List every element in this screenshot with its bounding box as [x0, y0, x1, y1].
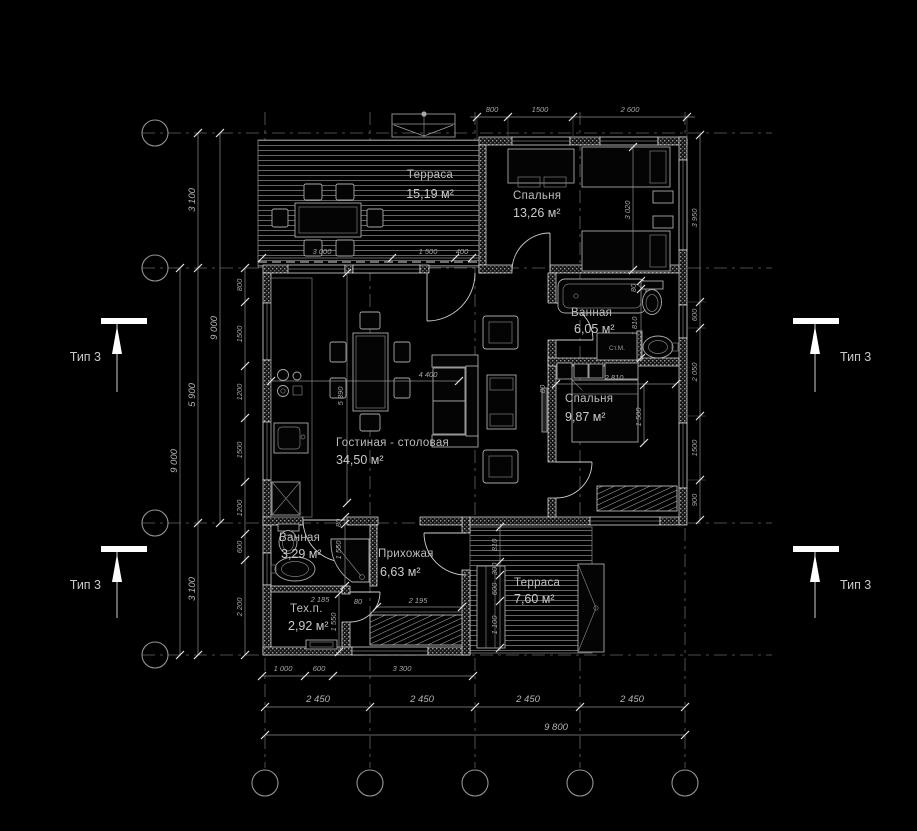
dim-bottom-axes-0: 2 450	[305, 694, 330, 705]
chair	[336, 240, 354, 256]
dim-left-9000-a: 9 000	[209, 315, 220, 339]
roof-window-symbol	[392, 111, 455, 137]
axis-bubble	[462, 770, 488, 796]
chair	[336, 184, 354, 200]
dim-terrace-top-0: 3 000	[313, 247, 333, 256]
dim-annex-f: 2 195	[408, 596, 429, 605]
dim-right-2: 2 050	[690, 362, 699, 383]
room-label-bathroom2: Ванная	[279, 532, 320, 544]
dim-bottom-axes-1: 2 450	[409, 694, 434, 705]
tv	[542, 388, 547, 432]
dim-left-inner-0: 800	[235, 278, 244, 291]
dim-bottom-total: 9 800	[544, 722, 568, 733]
dim-left-inner-5: 600	[235, 540, 244, 553]
room-area-hallway: 6,63 м²	[380, 565, 421, 579]
room-label-tech: Тех.п.	[290, 603, 323, 615]
pillow	[574, 364, 588, 378]
nightstand	[653, 191, 673, 203]
bed	[582, 147, 670, 187]
dim-bottom-house-0: 1 000	[274, 664, 294, 673]
dim-right-0: 3 950	[690, 208, 699, 228]
room-label-terrace-bottom: Терраса	[514, 577, 561, 589]
armchair	[483, 450, 518, 483]
dim-left-inner-3: 1500	[235, 441, 244, 459]
washer-label: Ст.М.	[609, 345, 625, 352]
room-area-terrace-top: 15,19 м²	[406, 187, 454, 201]
room-label-living: Гостиная - столовая	[336, 437, 449, 449]
axis-bubble	[357, 770, 383, 796]
dim-living-h: 5 390	[336, 386, 345, 406]
dim-left-mid-0: 3 100	[187, 187, 198, 211]
room-label-hallway: Прихожая	[378, 548, 434, 560]
dim-bedroom2-bed: 1 500	[634, 407, 643, 427]
axis-bubble	[567, 770, 593, 796]
dim-left-9000-b: 9 000	[169, 448, 180, 472]
chair	[272, 209, 288, 227]
section-marker-label: Тип 3	[840, 350, 871, 364]
dim-right-1: 600	[690, 308, 699, 321]
planter	[578, 564, 604, 652]
bench	[477, 566, 505, 648]
radiator	[306, 640, 337, 649]
section-marker-left-bottom: Тип 3	[70, 546, 147, 618]
dim-terrace-top-1: 1 500	[419, 247, 439, 256]
section-marker-right-bottom: Тип 3	[793, 546, 871, 618]
dim-top-2: 2 600	[620, 105, 641, 114]
chair	[304, 184, 322, 200]
dim-top-0: 800	[486, 105, 499, 114]
dim-terrace-bottom-3: 1 100	[490, 615, 499, 635]
dining-table	[353, 333, 388, 411]
dim-bathroom1-gap: 80	[629, 283, 638, 292]
axis-bubble	[252, 770, 278, 796]
dim-bottom-axes-2: 2 450	[515, 694, 540, 705]
room-label-bathroom1: Ванная	[571, 307, 612, 319]
dim-annex-b: 1 550	[334, 540, 343, 560]
dim-left-mid-1: 5 900	[187, 382, 198, 406]
kitchen-counter	[271, 278, 312, 517]
floor-plan-drawing: 800 1500 2 600 9 000 3 100 5 900 3 100 9…	[0, 0, 917, 831]
bedroom1-door-arc	[512, 233, 550, 271]
section-marker-right-top: Тип 3	[793, 318, 871, 392]
sofa	[432, 355, 478, 447]
dim-bottom-house-2: 3 300	[393, 664, 413, 673]
chair	[360, 414, 380, 431]
dim-bedroom2-w: 2 810	[604, 373, 625, 382]
room-area-bedroom2: 9,87 м²	[565, 410, 606, 424]
pillow	[589, 364, 603, 378]
bed	[582, 231, 670, 271]
room-area-bathroom1: 6,05 м²	[574, 322, 615, 336]
dim-left-inner-2: 1200	[235, 383, 244, 401]
terrace-table	[295, 203, 361, 237]
dim-bottom-house-1: 600	[313, 664, 326, 673]
dim-right-4: 900	[690, 493, 699, 506]
room-area-bedroom1: 13,26 м²	[513, 206, 561, 220]
armchair	[483, 316, 518, 349]
section-marker-label: Тип 3	[70, 350, 101, 364]
sink	[643, 336, 673, 358]
wardrobe-hatched	[597, 486, 677, 511]
section-marker-label: Тип 3	[840, 578, 871, 592]
hall-wardrobe-hatched	[370, 615, 462, 645]
room-label-bedroom1: Спальня	[513, 190, 561, 202]
dim-left-inner-4: 1200	[235, 499, 244, 517]
room-area-living: 34,50 м²	[336, 453, 384, 467]
kitchen-sink	[274, 423, 308, 453]
bedroom2-door-arc	[556, 462, 592, 498]
dim-bedroom1-h: 3 020	[623, 200, 632, 220]
terrace-top-deck	[258, 140, 481, 267]
dim-top-1: 1500	[532, 105, 550, 114]
dim-bathroom1-h: 1 810	[630, 316, 639, 336]
room-area-terrace-bottom: 7,60 м²	[514, 592, 555, 606]
toilet	[278, 524, 299, 531]
tv-console	[487, 375, 516, 429]
room-label-terrace-top: Терраса	[407, 169, 454, 181]
dim-terrace-top-2: 400	[456, 247, 469, 256]
dim-terrace-bottom-1: 300	[490, 562, 499, 575]
dim-left-inner-6: 2 200	[235, 597, 244, 618]
nightstand	[653, 216, 673, 228]
dim-terrace-bottom-2: 600	[490, 582, 499, 595]
dim-right-3: 1500	[690, 439, 699, 457]
chair	[360, 312, 380, 329]
dim-annex-a: 80	[334, 518, 343, 527]
dim-living-w: 4 400	[419, 370, 439, 379]
chair	[367, 209, 383, 227]
room-label-bedroom2: Спальня	[565, 393, 613, 405]
axis-bubble	[672, 770, 698, 796]
section-marker-label: Тип 3	[70, 578, 101, 592]
floor-plan-page: 800 1500 2 600 9 000 3 100 5 900 3 100 9…	[0, 0, 917, 831]
dim-terrace-bottom-0: 810	[490, 538, 499, 551]
dim-left-mid-2: 3 100	[187, 576, 198, 600]
room-area-bathroom2: 3,29 м²	[281, 547, 322, 561]
dim-left-inner-1: 1500	[235, 325, 244, 343]
dim-bottom-axes-3: 2 450	[619, 694, 644, 705]
chair	[330, 342, 346, 362]
dim-annex-d: 80	[354, 597, 363, 606]
room-area-tech: 2,92 м²	[288, 619, 329, 633]
dim-bedroom2-gap: 80	[538, 384, 547, 393]
chair	[394, 342, 410, 362]
section-marker-left-top: Тип 3	[70, 318, 147, 392]
nightstand	[557, 363, 572, 379]
terrace-door-arc	[427, 273, 475, 321]
dim-annex-c: 1 550	[329, 612, 338, 632]
